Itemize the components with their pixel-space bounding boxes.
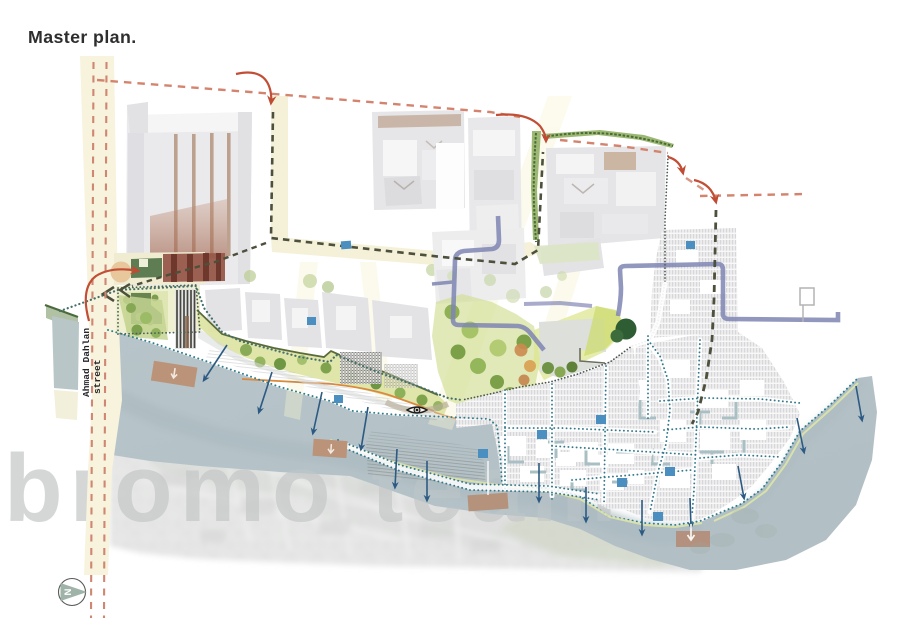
svg-text:N: N	[63, 588, 74, 595]
svg-text:Ahmad Dahlan: Ahmad Dahlan	[81, 328, 92, 397]
svg-text:street: street	[92, 359, 103, 394]
svg-text:Master plan.: Master plan.	[28, 27, 137, 47]
